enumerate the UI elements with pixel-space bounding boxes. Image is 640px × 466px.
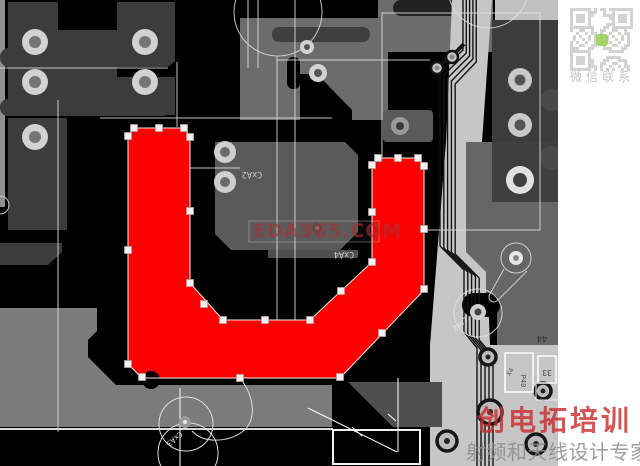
vertex-handle[interactable] — [139, 374, 146, 381]
vertex-handle[interactable] — [237, 375, 244, 382]
drill-via — [535, 383, 551, 399]
vertex-handle[interactable] — [375, 155, 382, 162]
wechat-icon — [596, 34, 608, 46]
through-hole-pad — [22, 69, 48, 95]
vertex-handle[interactable] — [421, 286, 428, 293]
via-pad — [509, 251, 523, 265]
vertex-handle[interactable] — [187, 280, 194, 287]
vertex-handle[interactable] — [421, 226, 428, 233]
pcb-canvas[interactable]: CxA2 CxA4 CxA3 26v7 44 33 P40 X4 EDA365.… — [0, 0, 640, 466]
through-hole-pad — [214, 141, 236, 163]
vertex-handle[interactable] — [125, 247, 132, 254]
via-pad — [300, 40, 314, 54]
through-hole-pad — [506, 166, 534, 194]
through-hole-pad — [508, 68, 532, 92]
vertex-handle[interactable] — [220, 317, 227, 324]
vertex-handle[interactable] — [187, 134, 194, 141]
vertex-handle[interactable] — [201, 301, 208, 308]
brand-watermark-line2: 射频和天线设计专家 — [466, 440, 640, 464]
vertex-handle[interactable] — [307, 317, 314, 324]
brand-watermark: 创电拓培训 射频和天线设计专家 — [466, 404, 640, 464]
vertex-handle[interactable] — [338, 288, 345, 295]
refdes-label: 33 — [542, 368, 552, 377]
through-hole-pad — [22, 124, 48, 150]
through-hole-pad — [214, 171, 236, 193]
vertex-handle[interactable] — [415, 155, 422, 162]
refdes-label: CxA4 — [334, 249, 354, 259]
vertex-handle[interactable] — [369, 209, 376, 216]
vertex-handle[interactable] — [379, 330, 386, 337]
center-watermark: EDA365.COM — [249, 220, 402, 242]
via-pad — [391, 117, 409, 135]
drill-via — [437, 431, 457, 451]
vertex-handle[interactable] — [369, 162, 376, 169]
vertex-handle[interactable] — [395, 155, 402, 162]
drill-origin-pad — [179, 416, 191, 428]
vertex-handle[interactable] — [187, 208, 194, 215]
through-hole-pad — [132, 29, 158, 55]
center-watermark-text: EDA365.COM — [253, 220, 402, 242]
refdes-label: P40 — [519, 375, 527, 388]
refdes-label: CxA2 — [242, 169, 262, 179]
vertex-handle[interactable] — [337, 374, 344, 381]
pcb-editor-viewport[interactable]: CxA2 CxA4 CxA3 26v7 44 33 P40 X4 EDA365.… — [0, 0, 640, 466]
vertex-handle[interactable] — [369, 259, 376, 266]
qr-caption: 微信联系 — [570, 70, 634, 84]
drill-via — [480, 349, 496, 365]
through-hole-pad — [132, 69, 158, 95]
vertex-handle[interactable] — [156, 125, 163, 132]
vertex-handle[interactable] — [421, 163, 428, 170]
vertex-handle[interactable] — [262, 317, 269, 324]
vertex-handle[interactable] — [181, 125, 188, 132]
vertex-handle[interactable] — [125, 133, 132, 140]
through-hole-pad — [508, 113, 532, 137]
vertex-handle[interactable] — [125, 361, 132, 368]
vertex-handle[interactable] — [131, 125, 138, 132]
through-hole-pad — [22, 29, 48, 55]
via-pad — [309, 64, 327, 82]
brand-watermark-line1: 创电拓培训 — [476, 404, 632, 437]
refdes-label: 44 — [537, 333, 548, 343]
via-pad — [470, 304, 486, 320]
